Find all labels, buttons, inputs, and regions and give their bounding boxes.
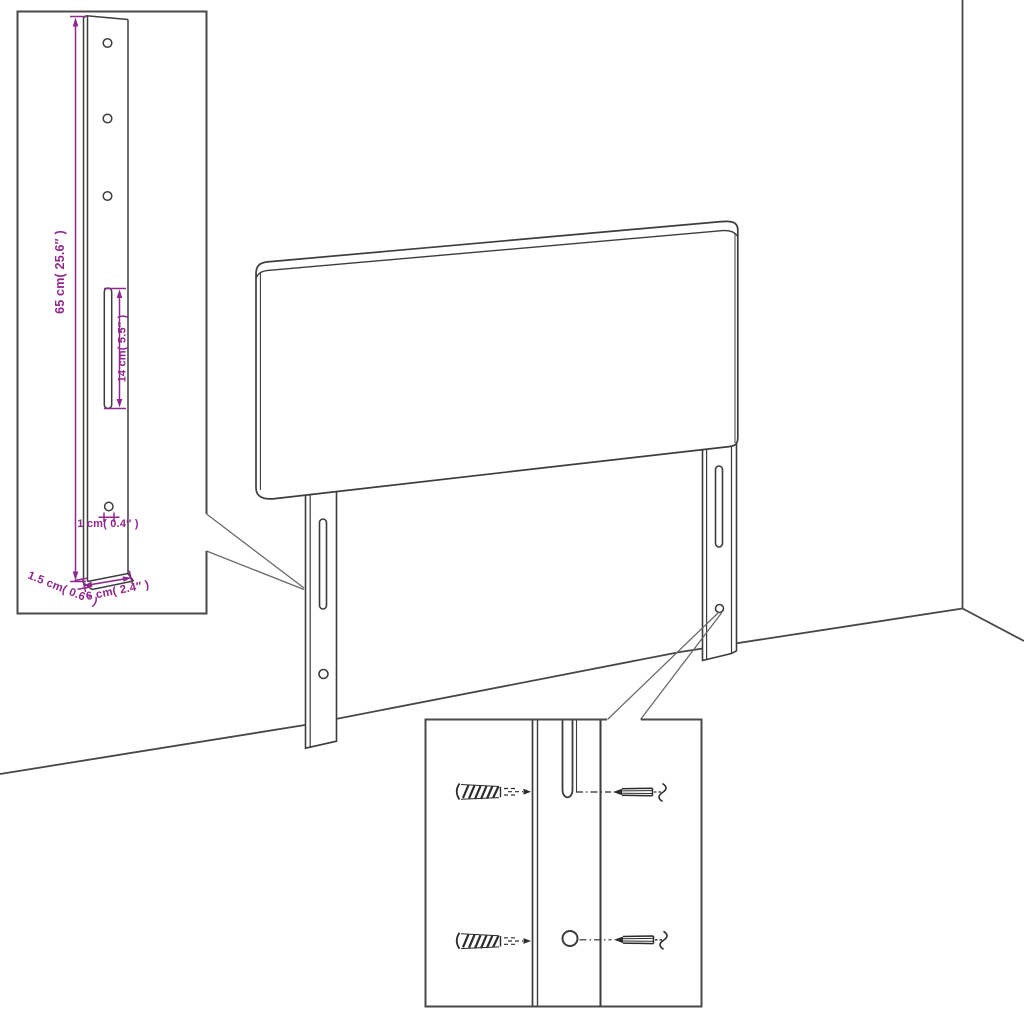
right-leg-hole — [716, 605, 724, 613]
dim-label-hole-diameter: 1 cm( 0.4″ ) — [77, 518, 139, 532]
diagram-page: 65 cm( 25.6″ ) 14 cm( 5.5″ ) 1 cm( 0.4″ … — [0, 0, 1024, 1024]
headboard-panel — [256, 221, 738, 499]
floor-line-right — [963, 609, 1024, 642]
right-leg — [703, 440, 737, 661]
dim-label-slot-length: 14 cm( 5.5″ ) — [117, 307, 132, 391]
mounting-detail-inset — [426, 720, 702, 1007]
left-leg-hole — [319, 670, 328, 679]
callout-wedge-left — [207, 514, 305, 590]
left-leg — [306, 481, 337, 748]
left-leg-slot — [320, 519, 327, 609]
diagram-canvas — [0, 0, 1024, 1024]
right-leg-slot — [716, 466, 723, 547]
dim-label-leg-height: 65 cm( 25.6″ ) — [53, 222, 69, 322]
